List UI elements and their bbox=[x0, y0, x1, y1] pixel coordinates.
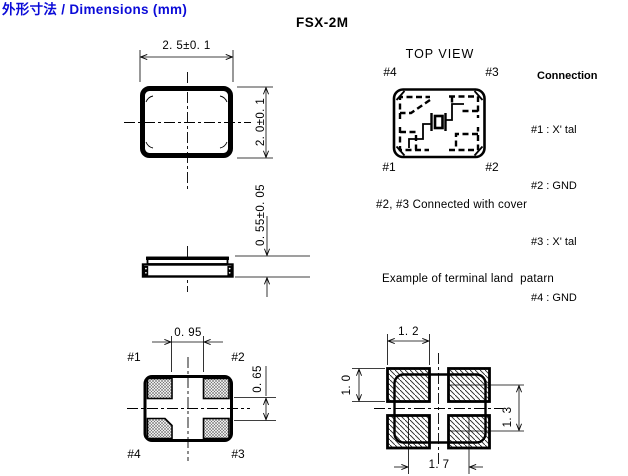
connection-heading: Connection bbox=[537, 70, 598, 83]
terminal-left bbox=[144, 266, 149, 276]
cover-connection-note: #2, #3 Connected with cover bbox=[376, 199, 527, 212]
side-view-drawing bbox=[143, 216, 310, 297]
dim-land-pitch-y: 1. 3 bbox=[502, 402, 516, 432]
part-number: FSX-2M bbox=[296, 15, 349, 31]
bottom-view-pad2-label: #2 bbox=[228, 351, 248, 365]
connection-table: #1 : X' tal #2 : GND #3 : X' tal #4 : GN… bbox=[531, 84, 577, 346]
top-view-pad2-label: #2 bbox=[482, 161, 502, 175]
connection-row-4: #4 : GND bbox=[531, 289, 577, 308]
land-pattern-drawing bbox=[352, 334, 524, 474]
dim-thickness: 0. 55±0. 05 bbox=[255, 177, 269, 253]
package-base bbox=[143, 265, 233, 277]
bottom-view-drawing bbox=[127, 336, 276, 461]
connection-row-3: #3 : X' tal bbox=[531, 233, 577, 252]
dim-pad-gap-y: 0. 65 bbox=[252, 364, 266, 394]
package-outline-front bbox=[143, 89, 231, 156]
dim-pad-gap-x: 0. 95 bbox=[162, 327, 214, 340]
connection-row-2: #2 : GND bbox=[531, 177, 577, 196]
pad4-chamfered bbox=[148, 419, 173, 439]
datasheet-dimensions-page: 外形寸法 / Dimensions (mm) FSX-2M 2. 5±0. 1 … bbox=[0, 0, 628, 476]
dim-height: 2. 0±0. 1 bbox=[255, 86, 269, 158]
dim-land-height: 1. 0 bbox=[341, 370, 355, 400]
bottom-view-pad4-label: #4 bbox=[124, 448, 144, 462]
top-view-pad4-label: #4 bbox=[380, 66, 400, 80]
dim-land-pitch-x: 1. 7 bbox=[419, 459, 459, 472]
connection-row-1: #1 : X' tal bbox=[531, 121, 577, 140]
top-view-pad1-label: #1 bbox=[379, 161, 399, 175]
page-title: 外形寸法 / Dimensions (mm) bbox=[2, 2, 187, 18]
dim-land-width: 1. 2 bbox=[387, 326, 430, 339]
bottom-view-pad1-label: #1 bbox=[124, 351, 144, 365]
top-view-label: TOP VIEW bbox=[404, 47, 476, 61]
top-view-pad3-label: #3 bbox=[482, 66, 502, 80]
land-pattern-note: Example of terminal land patarn bbox=[382, 273, 554, 286]
bottom-view-pad3-label: #3 bbox=[228, 448, 248, 462]
terminal-right bbox=[227, 266, 232, 276]
top-view-drawing bbox=[394, 90, 485, 158]
front-view-drawing bbox=[124, 50, 273, 190]
dim-width: 2. 5±0. 1 bbox=[140, 40, 233, 53]
